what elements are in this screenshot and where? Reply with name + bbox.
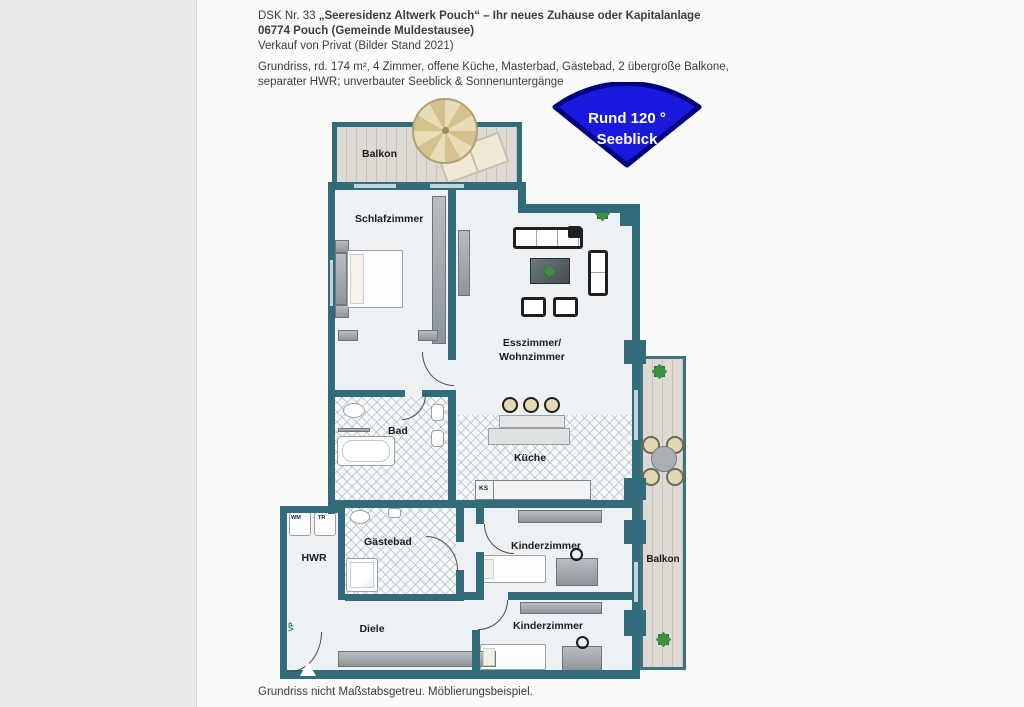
bar-stool xyxy=(544,397,560,413)
wall-segment xyxy=(476,552,484,600)
room-label-balkon-right: Balkon xyxy=(640,554,686,565)
wardrobe xyxy=(520,602,602,614)
balcony-top-label: Balkon xyxy=(362,148,397,160)
window xyxy=(330,260,333,306)
tr-label: TR xyxy=(318,515,325,521)
wall-segment xyxy=(280,670,640,679)
footer-note: Grundriss nicht Maßstabsgetreu. Möblieru… xyxy=(258,686,533,698)
counter-divider xyxy=(493,481,494,499)
wardrobe xyxy=(518,510,602,523)
wm-label: WM xyxy=(291,515,301,521)
desk xyxy=(556,558,598,586)
desk-chair xyxy=(576,636,589,649)
wall-segment xyxy=(464,592,476,600)
shower-tray xyxy=(350,562,374,588)
wall-segment xyxy=(448,390,456,508)
sink xyxy=(431,430,444,447)
kitchen-island xyxy=(488,428,570,445)
wall-segment xyxy=(476,508,484,524)
header-line-1: DSK Nr. 33 „Seeresidenz Altwerk Pouch“ –… xyxy=(258,9,700,24)
bathtub-inner xyxy=(342,440,390,462)
armchair xyxy=(521,297,546,317)
header-line1-prefix: DSK Nr. 33 xyxy=(258,10,319,22)
room-label-bad: Bad xyxy=(388,425,408,437)
dresser xyxy=(418,330,438,341)
armchair xyxy=(553,297,578,317)
window-pier xyxy=(624,340,646,364)
room-label-wohnzimmer: Wohnzimmer xyxy=(480,351,584,363)
toilet xyxy=(350,510,370,524)
plant-icon xyxy=(654,366,665,377)
description-line-1: Grundriss, rd. 174 m², 4 Zimmer, offene … xyxy=(258,60,729,75)
sofa xyxy=(588,250,608,296)
floorplan: Balkon xyxy=(280,100,716,702)
window-pier xyxy=(624,520,646,544)
wall-segment xyxy=(508,592,640,600)
toilet xyxy=(343,403,365,418)
listing-header: DSK Nr. 33 „Seeresidenz Altwerk Pouch“ –… xyxy=(258,9,700,54)
wall-segment xyxy=(456,506,464,542)
room-label-kinderzimmer-2: Kinderzimmer xyxy=(502,620,594,632)
window xyxy=(354,184,396,188)
plant-icon xyxy=(658,634,669,645)
shelf xyxy=(338,428,370,432)
window xyxy=(634,562,638,602)
balcony-door-opening xyxy=(430,184,464,188)
wall-segment xyxy=(280,506,338,513)
pillow xyxy=(483,648,495,666)
window xyxy=(634,390,638,440)
sink xyxy=(431,404,444,421)
header-line-2: 06774 Pouch (Gemeinde Muldestausee) xyxy=(258,24,700,39)
wall-segment xyxy=(328,182,335,514)
wall-segment xyxy=(448,190,456,360)
sink xyxy=(388,508,401,518)
dresser xyxy=(338,330,358,341)
bar-stool xyxy=(523,397,539,413)
bar-stool xyxy=(502,397,518,413)
balcony-right xyxy=(640,356,686,670)
wall-segment xyxy=(280,506,287,679)
watermark-logo: VP xyxy=(289,592,296,632)
sideboard xyxy=(458,230,470,296)
parasol-center xyxy=(442,127,449,134)
wall-segment xyxy=(518,204,640,213)
room-label-gaestebad: Gästebad xyxy=(364,536,412,548)
window-pier xyxy=(624,610,646,636)
window-pier xyxy=(624,478,646,500)
room-label-hwr: HWR xyxy=(292,552,336,564)
wall-segment xyxy=(335,390,405,397)
kitchen-island-top xyxy=(499,415,565,428)
fridge-label: KS xyxy=(479,485,488,492)
room-label-esszimmer: Esszimmer/ xyxy=(480,337,584,349)
background-margin xyxy=(0,0,197,707)
room-label-diele: Diele xyxy=(342,623,402,635)
header-line-3: Verkauf von Privat (Bilder Stand 2021) xyxy=(258,39,700,54)
wardrobe xyxy=(432,196,446,344)
entrance-arrow-icon xyxy=(300,662,316,676)
side-table xyxy=(568,226,581,238)
room-label-schlafzimmer: Schlafzimmer xyxy=(355,213,423,225)
header-line1-title: „Seeresidenz Altwerk Pouch“ – Ihr neues … xyxy=(319,10,701,22)
wall-segment xyxy=(338,506,345,600)
plant-icon xyxy=(546,268,554,276)
bed-headboard xyxy=(335,253,347,305)
floor-mask xyxy=(526,182,636,204)
bed-pillows xyxy=(350,254,364,304)
room-label-kinderzimmer-1: Kinderzimmer xyxy=(498,540,594,552)
wall-segment xyxy=(335,500,456,508)
wall-segment xyxy=(456,500,640,508)
room-label-kueche: Küche xyxy=(490,452,570,464)
balcony-table xyxy=(651,446,677,472)
desk xyxy=(562,646,602,672)
wall-segment xyxy=(472,630,480,670)
wall-segment xyxy=(345,594,464,601)
